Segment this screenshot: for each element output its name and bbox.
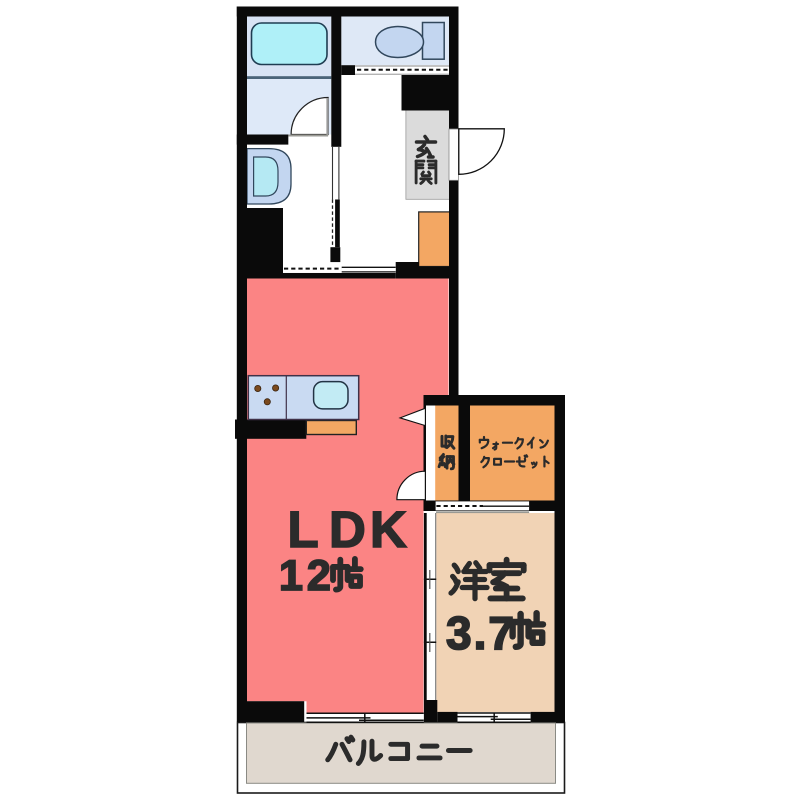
svg-text:12: 12 (279, 552, 335, 600)
svg-text:3.7: 3.7 (446, 607, 516, 659)
svg-text:K: K (370, 501, 407, 558)
svg-text:D: D (329, 501, 366, 558)
svg-text:L: L (288, 501, 319, 558)
